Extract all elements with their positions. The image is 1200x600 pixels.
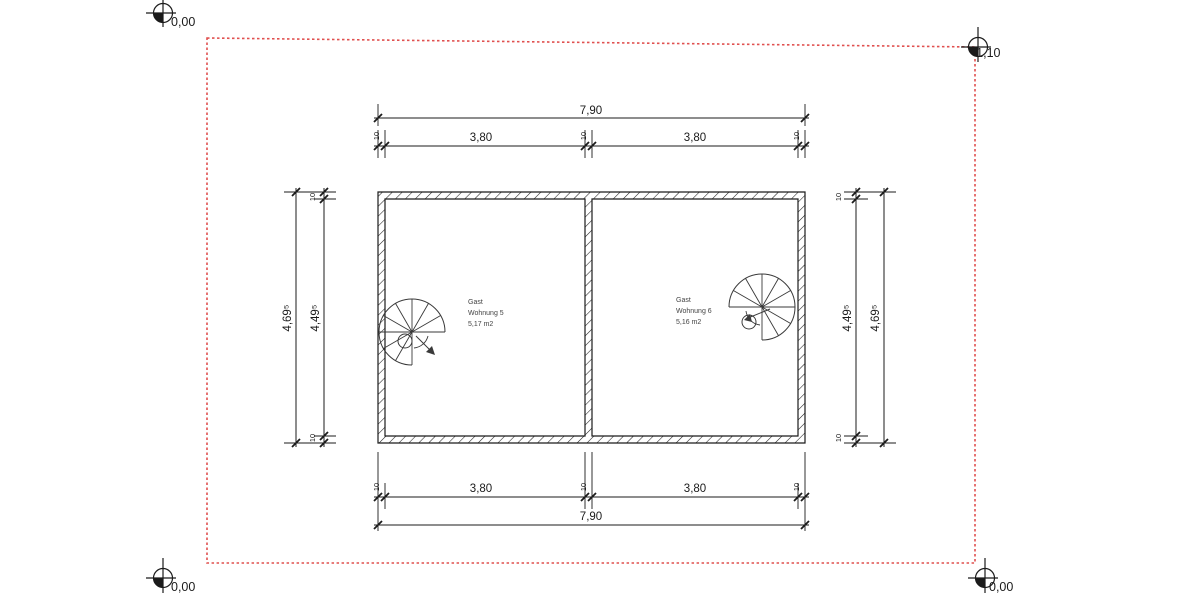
room-label-right: Gast Wohnung 6 5,16 m2 — [676, 297, 712, 326]
dim-wall-10-right-bottom: 10 — [834, 434, 843, 442]
dim-left-outer: 4,69⁵ — [282, 304, 294, 331]
spiral-stair-right — [729, 274, 795, 340]
dim-wall-10-top-right: 10 — [792, 132, 801, 140]
room-left-line3: 5,17 m2 — [468, 321, 493, 328]
dim-top-overall: 7,90 — [580, 105, 602, 117]
room-right-line2: Wohnung 6 — [676, 308, 712, 315]
room-right-line1: Gast — [676, 297, 691, 304]
dim-right-inner: 4,49⁵ — [842, 304, 854, 331]
dim-top-segment-right: 3,80 — [684, 132, 706, 144]
dim-top-segment-left: 3,80 — [470, 132, 492, 144]
dim-left-inner: 4,49⁵ — [310, 304, 322, 331]
dim-wall-10-bottom-left: 10 — [372, 483, 381, 491]
dim-bottom-overall: 7,90 — [580, 511, 602, 523]
dim-wall-10-left-bottom: 10 — [308, 434, 317, 442]
elevation-label-bottom-right: 0,00 — [989, 580, 1013, 594]
room-right-line3: 5,16 m2 — [676, 319, 701, 326]
elevation-label-top-left: 0,00 — [171, 15, 195, 29]
floor-plan-drawing: 0,00 -1,10 0,00 0,00 7,90 3,80 3,80 3,80… — [0, 0, 1200, 600]
room-left-line2: Wohnung 5 — [468, 310, 504, 317]
dim-wall-10-right-top: 10 — [834, 193, 843, 201]
dim-wall-10-top-mid: 10 — [579, 132, 588, 140]
elevation-label-bottom-left: 0,00 — [171, 580, 195, 594]
dim-bottom-segment-right: 3,80 — [684, 483, 706, 495]
room-label-left: Gast Wohnung 5 5,17 m2 — [468, 299, 504, 328]
floor-plan-canvas: 0,00 -1,10 0,00 0,00 7,90 3,80 3,80 3,80… — [0, 0, 1200, 600]
elevation-label-top-right: -1,10 — [972, 46, 1001, 60]
dim-right-outer: 4,69⁵ — [870, 304, 882, 331]
dim-wall-10-top-left: 10 — [372, 132, 381, 140]
dim-wall-10-left-top: 10 — [308, 193, 317, 201]
dim-wall-10-bottom-mid: 10 — [579, 483, 588, 491]
spiral-stair-left — [379, 299, 445, 365]
dim-bottom-segment-left: 3,80 — [470, 483, 492, 495]
dim-wall-10-bottom-right: 10 — [792, 483, 801, 491]
room-left-line1: Gast — [468, 299, 483, 306]
